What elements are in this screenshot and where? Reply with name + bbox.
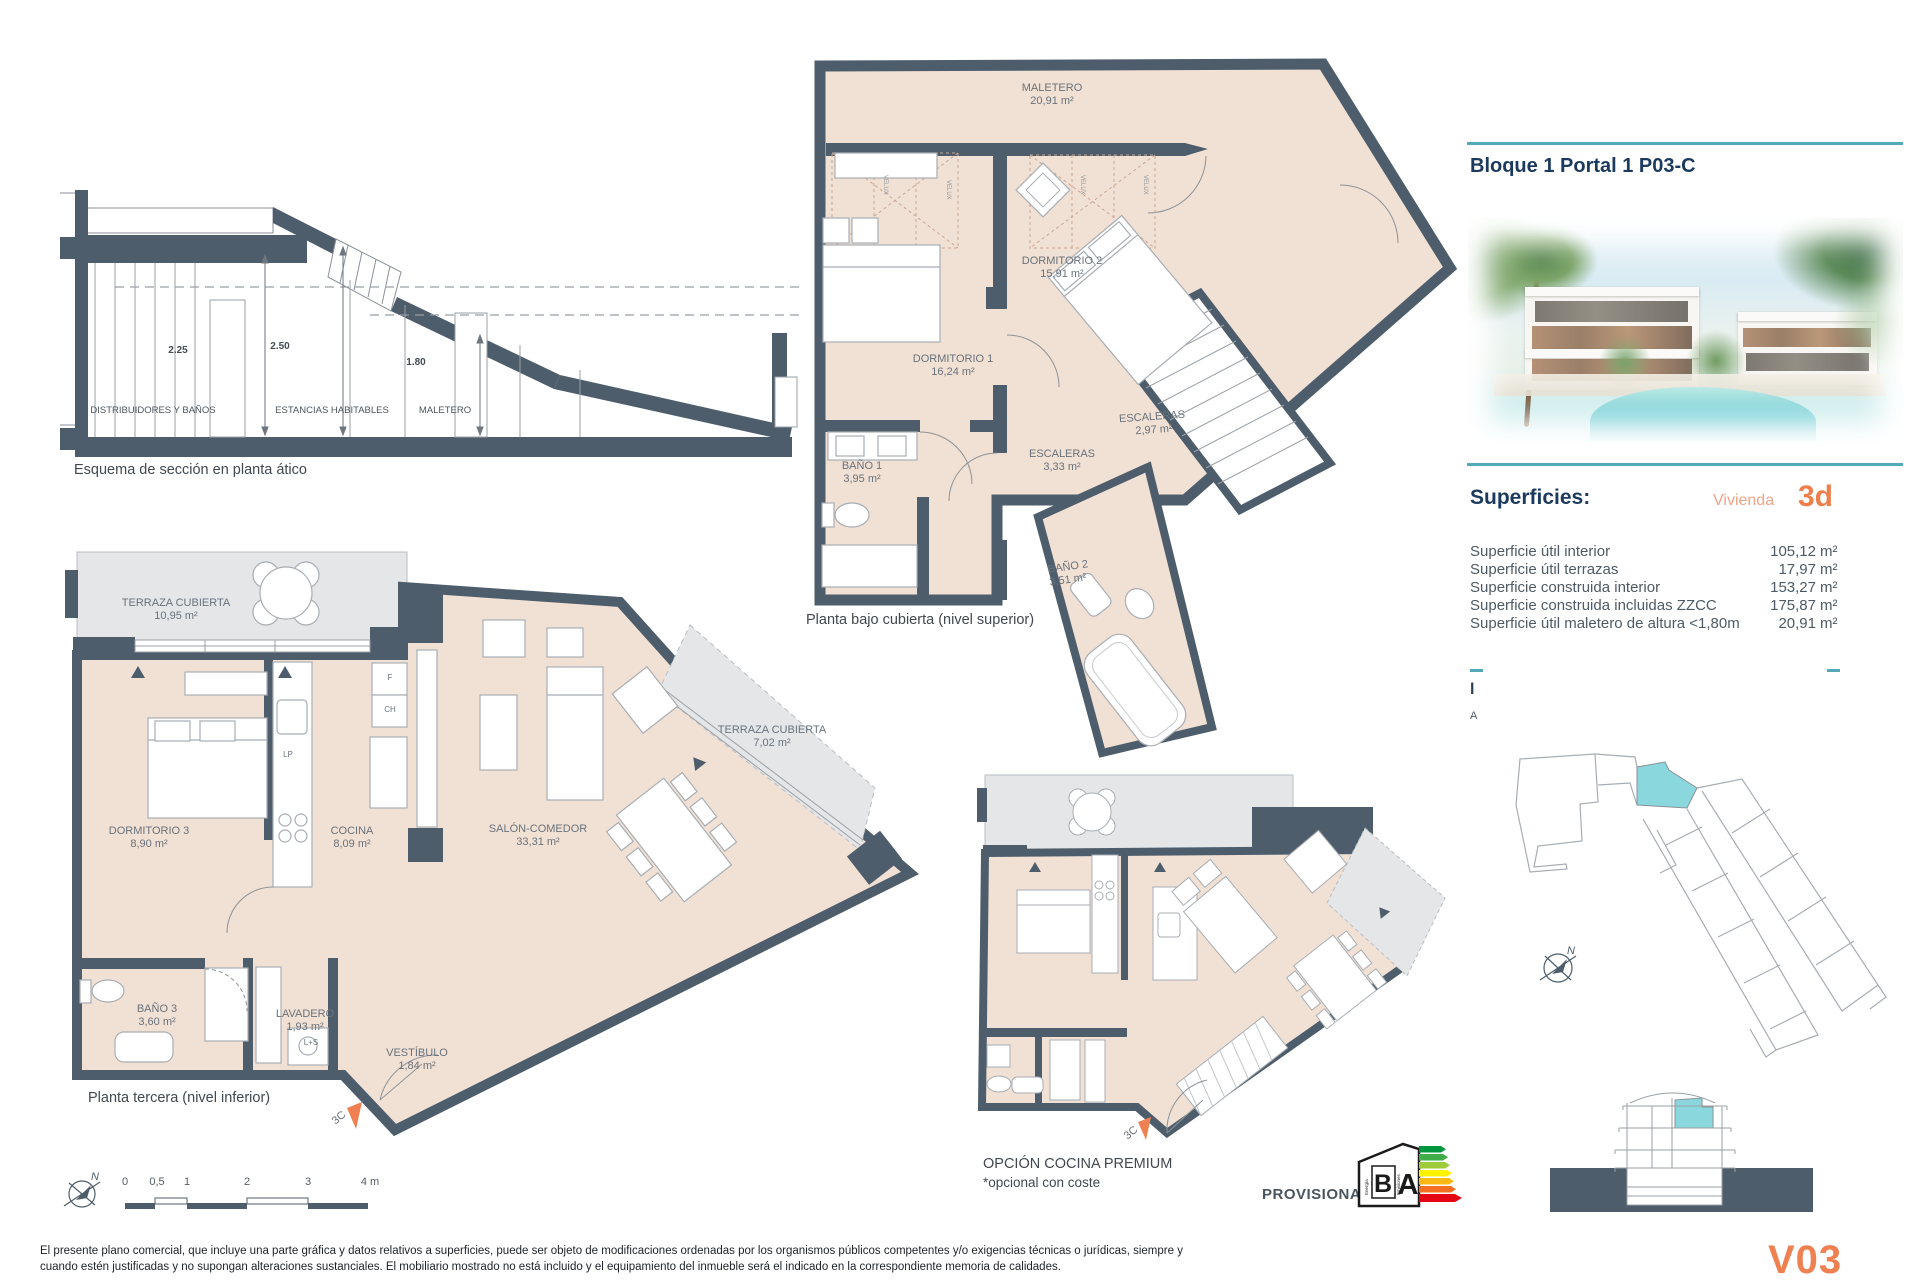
- plan-sheet: 2.25 2.50 1.80 DISTRIBUIDORES Y BAÑOS ES…: [0, 0, 1920, 1280]
- energy-arrow-6: [1419, 1194, 1462, 1202]
- cut-off-text: A: [1470, 710, 1477, 722]
- section-caption: Esquema de sección en planta ático: [74, 462, 307, 478]
- energy-letter-b: B: [1374, 1170, 1392, 1198]
- superficie-row: Superficie útil maletero de altura <1,80…: [1470, 615, 1846, 633]
- panel-title: Bloque 1 Portal 1 P03-C: [1470, 155, 1696, 178]
- superficie-unit: m²: [1820, 561, 1846, 578]
- room-label: BAÑO 3: [137, 1003, 177, 1015]
- room-area: 15,91 m²: [1040, 268, 1083, 280]
- plan-premium-drawing: [975, 750, 1475, 1170]
- room-area: 10,95 m²: [154, 610, 197, 622]
- superficie-unit: m²: [1820, 543, 1846, 560]
- superficie-label: Superficie construida interior: [1470, 579, 1660, 596]
- room-label: VESTÍBULO: [386, 1047, 448, 1059]
- plan-premium-caption: OPCIÓN COCINA PREMIUM: [983, 1156, 1172, 1172]
- room-area: 16,24 m²: [931, 366, 974, 378]
- room-area: 3,60 m²: [138, 1016, 175, 1028]
- compass-icon: N: [55, 1170, 395, 1230]
- section-zone-3: MALETERO: [419, 405, 471, 417]
- velux-label: VELUX: [1079, 175, 1085, 195]
- velux-label: VELUX: [1142, 175, 1148, 195]
- velux-label: VELUX: [945, 180, 951, 200]
- superficie-value: 105,12: [1770, 543, 1816, 560]
- room-area: 33,31 m²: [516, 836, 559, 848]
- room-area: 1,84 m²: [398, 1060, 435, 1072]
- superficie-label: Superficie útil maletero de altura <1,80…: [1470, 615, 1740, 632]
- energy-certificate-icon: B A Energía Emisiones: [1355, 1140, 1470, 1215]
- room-label: DORMITORIO 2: [1022, 255, 1102, 267]
- ls-label: L+S: [304, 1038, 318, 1047]
- scale-tick: 3: [305, 1176, 311, 1188]
- superficie-label: Superficie construida incluidas ZZCC: [1470, 597, 1717, 614]
- version-label: V03: [1768, 1238, 1842, 1280]
- energy-arrow-1: [1419, 1154, 1448, 1161]
- energy-arrow-5: [1419, 1186, 1456, 1193]
- cut-off-text: l: [1470, 681, 1474, 699]
- superficie-label: Superficie útil terrazas: [1470, 561, 1618, 578]
- energy-axis-energia: Energía: [1364, 1179, 1369, 1195]
- superficies-title: Superficies:: [1470, 486, 1590, 510]
- north-label: N: [91, 1171, 99, 1183]
- energy-arrow-0: [1419, 1146, 1446, 1153]
- scale-tick: 1: [184, 1176, 190, 1188]
- superficie-value: 20,91: [1778, 615, 1816, 632]
- plan-premium-note: *opcional con coste: [983, 1175, 1100, 1190]
- teal-dash-left: [1470, 669, 1483, 672]
- room-area: 7,02 m²: [753, 737, 790, 749]
- superficie-label: Superficie útil interior: [1470, 543, 1610, 560]
- room-label: DORMITORIO 1: [913, 353, 993, 365]
- superficie-value: 175,87: [1770, 597, 1816, 614]
- plan-lower-caption: Planta tercera (nivel inferior): [88, 1090, 270, 1106]
- superficie-row: Superficie construida incluidas ZZCC 175…: [1470, 597, 1846, 615]
- superficie-row: Superficie útil terrazas 17,97 m²: [1470, 561, 1846, 579]
- energy-axis-emisiones: Emisiones: [1396, 1173, 1401, 1195]
- superficie-unit: m²: [1820, 615, 1846, 632]
- energy-arrow-3: [1419, 1170, 1452, 1177]
- north-label: N: [1567, 945, 1575, 957]
- panel-rule-mid: [1467, 463, 1903, 466]
- room-label: COCINA: [331, 825, 374, 837]
- energy-arrow-2: [1419, 1162, 1450, 1169]
- scale-tick: 0,5: [149, 1176, 164, 1188]
- footer-disclaimer-line1: El presente plano comercial, que incluye…: [40, 1245, 1183, 1257]
- panel-rule-top: [1467, 142, 1903, 145]
- scale-bar: N 0 0,5 1 2 3 4 m: [55, 1170, 395, 1230]
- appliance-f-label: F: [388, 673, 393, 682]
- appliance-lp-label: LP: [283, 750, 293, 759]
- velux-label: VELUX: [882, 175, 888, 195]
- room-label: ESCALERAS: [1029, 448, 1095, 460]
- room-label: TERRAZA CUBIERTA: [718, 724, 826, 736]
- teal-dash-right: [1827, 669, 1840, 672]
- building-section-diagram: [1545, 1075, 1885, 1225]
- scale-tick: 2: [244, 1176, 250, 1188]
- appliance-ch-label: CH: [384, 705, 396, 714]
- plan-lower-level: TERRAZA CUBIERTA 10,95 m² DORMITORIO 3 8…: [60, 540, 930, 1150]
- room-area: 8,90 m²: [130, 838, 167, 850]
- section-zone-1: DISTRIBUIDORES Y BAÑOS: [90, 405, 215, 417]
- superficie-unit: m²: [1820, 579, 1846, 596]
- room-area: 20,91 m²: [1030, 95, 1073, 107]
- room-label: BAÑO 1: [842, 460, 882, 472]
- scale-tick: 4 m: [361, 1176, 379, 1188]
- plan-premium-option: 3C: [975, 750, 1475, 1170]
- scale-tick: 0: [122, 1176, 128, 1188]
- section-dim-left: 2.25: [168, 345, 187, 357]
- room-label: MALETERO: [1022, 82, 1083, 94]
- room-label: SALÓN-COMEDOR: [489, 823, 587, 835]
- room-area: 8,09 m²: [333, 838, 370, 850]
- site-key-plan: N: [1480, 745, 1910, 1065]
- superficie-row: Superficie útil interior 105,12 m²: [1470, 543, 1846, 561]
- section-dim-mid: 2.50: [270, 341, 289, 353]
- vivienda-code: 3d: [1798, 480, 1833, 514]
- room-label: DORMITORIO 3: [109, 825, 189, 837]
- room-area: 3,95 m²: [843, 473, 880, 485]
- section-dim-right: 1.80: [406, 357, 425, 369]
- energy-arrow-4: [1419, 1178, 1454, 1185]
- superficie-value: 17,97: [1778, 561, 1816, 578]
- vivienda-label: Vivienda: [1713, 492, 1774, 510]
- superficie-row: Superficie construida interior 153,27 m²: [1470, 579, 1846, 597]
- room-area: 3,33 m²: [1043, 461, 1080, 473]
- room-area: 1,93 m²: [286, 1021, 323, 1033]
- room-label: TERRAZA CUBIERTA: [122, 597, 230, 609]
- section-zone-2: ESTANCIAS HABITABLES: [275, 405, 389, 417]
- plan-lower-drawing: [60, 540, 930, 1150]
- room-label: LAVADERO: [276, 1008, 334, 1020]
- footer-disclaimer-line2: cuando estén justificadas y no supongan …: [40, 1261, 1061, 1273]
- superficie-value: 153,27: [1770, 579, 1816, 596]
- superficie-unit: m²: [1820, 597, 1846, 614]
- building-render-image: [1468, 218, 1903, 441]
